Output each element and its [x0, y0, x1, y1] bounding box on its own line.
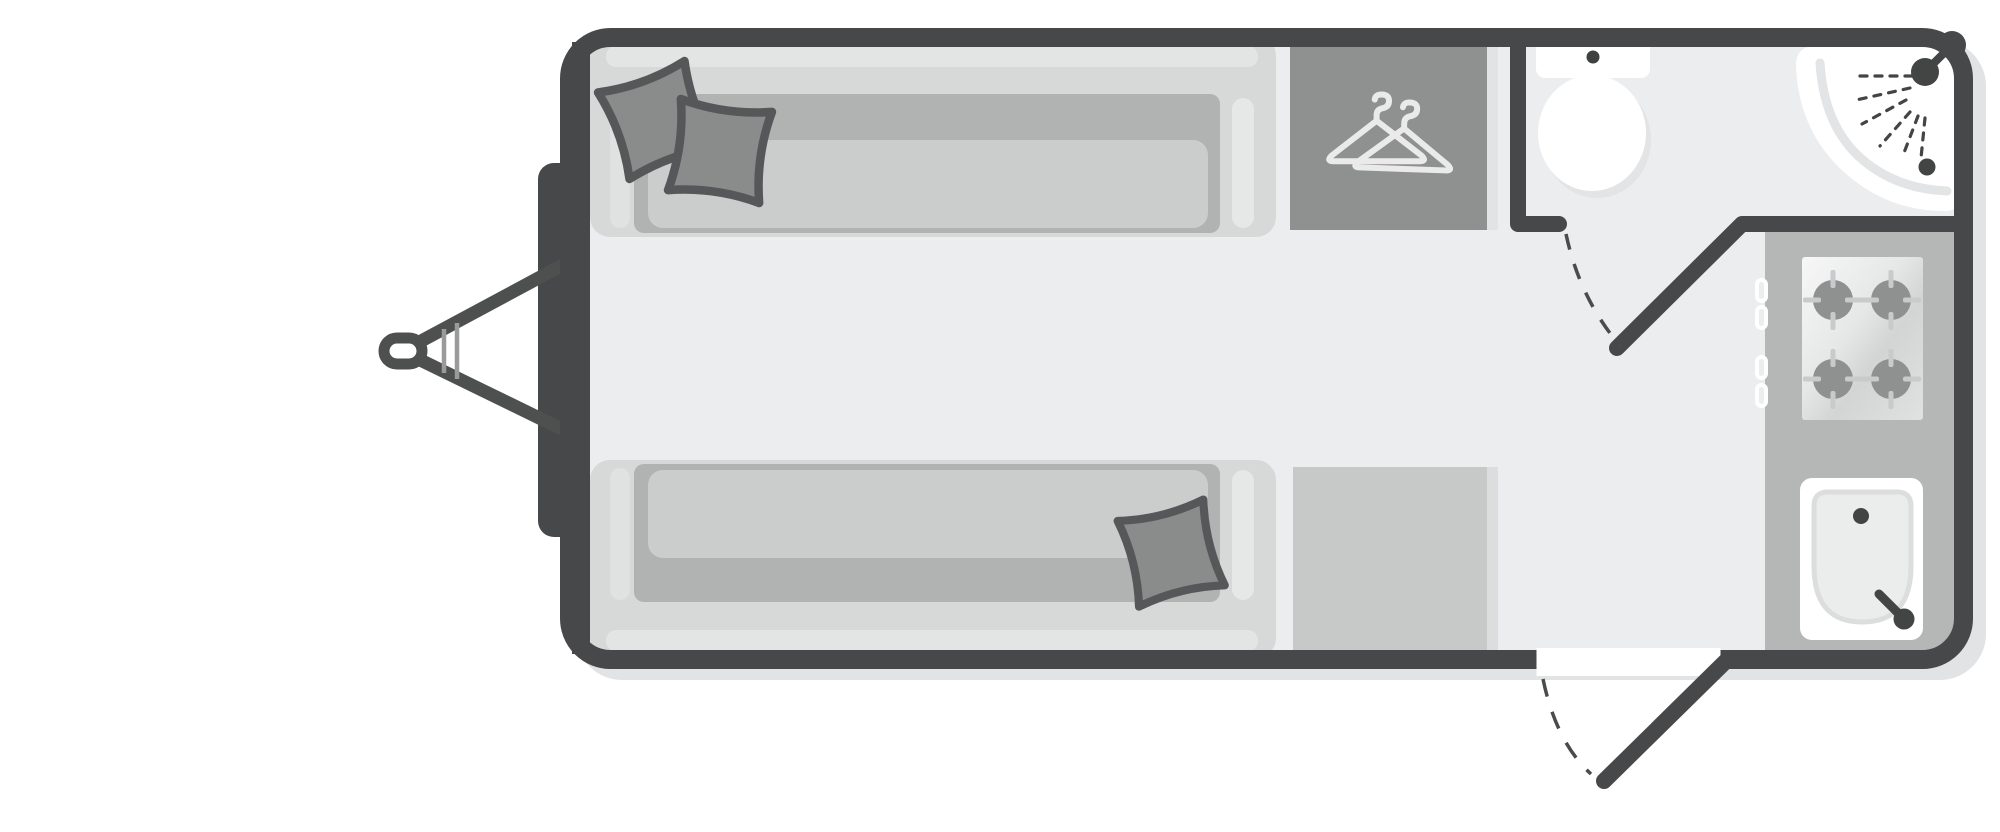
sink-tap-knob	[1894, 609, 1915, 630]
wardrobe-side-panel	[1487, 38, 1498, 230]
bed-backrest	[606, 46, 1258, 67]
entry-door	[1516, 648, 1742, 781]
toilet-bowl	[1538, 75, 1646, 191]
toilet-flush-button	[1587, 51, 1600, 64]
shower-drain	[1919, 159, 1936, 176]
bed-armrest-left	[610, 468, 630, 600]
base-cabinet	[1293, 467, 1487, 657]
bed-armrest-right	[1232, 98, 1254, 228]
shower-head-rose	[1911, 58, 1939, 86]
door-opening	[1537, 648, 1721, 676]
floorplan-canvas	[0, 0, 2000, 832]
shower-wall-mount	[1938, 31, 1966, 59]
chassis	[384, 163, 576, 537]
pillow	[668, 99, 772, 203]
entry-door-swing-arc	[1543, 679, 1591, 774]
sink-drain	[1853, 508, 1869, 524]
caravan-floorplan	[0, 0, 2000, 832]
cabinet-side-panel	[1487, 467, 1498, 657]
single-bed-bottom	[590, 460, 1276, 658]
bed-armrest-right	[1232, 470, 1254, 600]
wardrobe	[1290, 38, 1498, 230]
hob-panel	[1802, 257, 1923, 420]
wardrobe-unit	[1290, 38, 1487, 230]
tow-eye	[384, 338, 422, 364]
kitchen-sink	[1800, 478, 1923, 640]
bed-backrest	[606, 630, 1258, 651]
single-bed-top	[590, 36, 1276, 237]
